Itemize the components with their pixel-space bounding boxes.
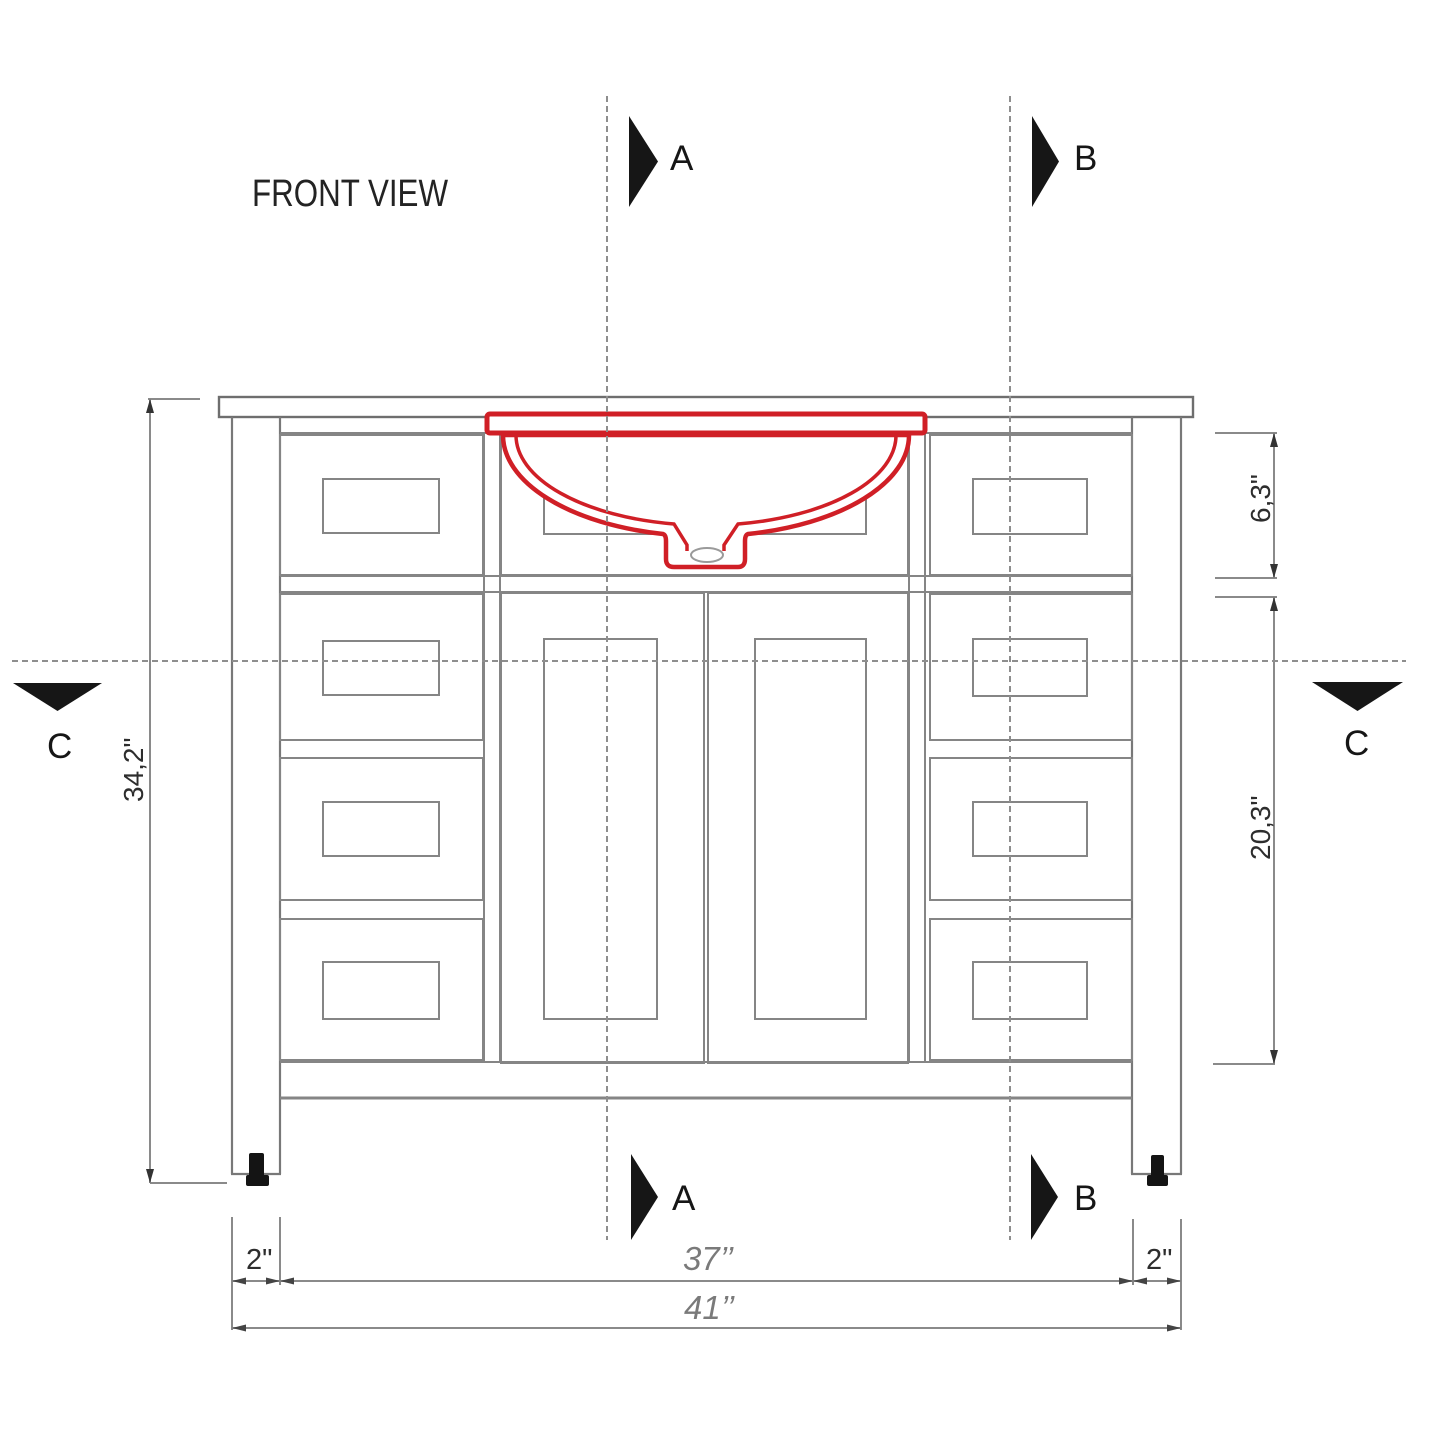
svg-text:41’’: 41’’ <box>684 1289 735 1326</box>
svg-text:A: A <box>670 139 694 178</box>
svg-text:34,2": 34,2" <box>118 738 149 802</box>
svg-text:B: B <box>1074 1179 1097 1218</box>
svg-text:37’’: 37’’ <box>683 1240 734 1277</box>
svg-text:2": 2" <box>1146 1244 1172 1276</box>
svg-text:FRONT VIEW: FRONT VIEW <box>252 173 448 215</box>
svg-text:A: A <box>672 1179 696 1218</box>
svg-text:6,3": 6,3" <box>1245 474 1276 523</box>
svg-text:20,3": 20,3" <box>1245 796 1276 860</box>
svg-text:C: C <box>47 727 72 766</box>
svg-text:B: B <box>1074 139 1097 178</box>
svg-text:C: C <box>1344 724 1369 763</box>
svg-text:2": 2" <box>246 1244 272 1276</box>
